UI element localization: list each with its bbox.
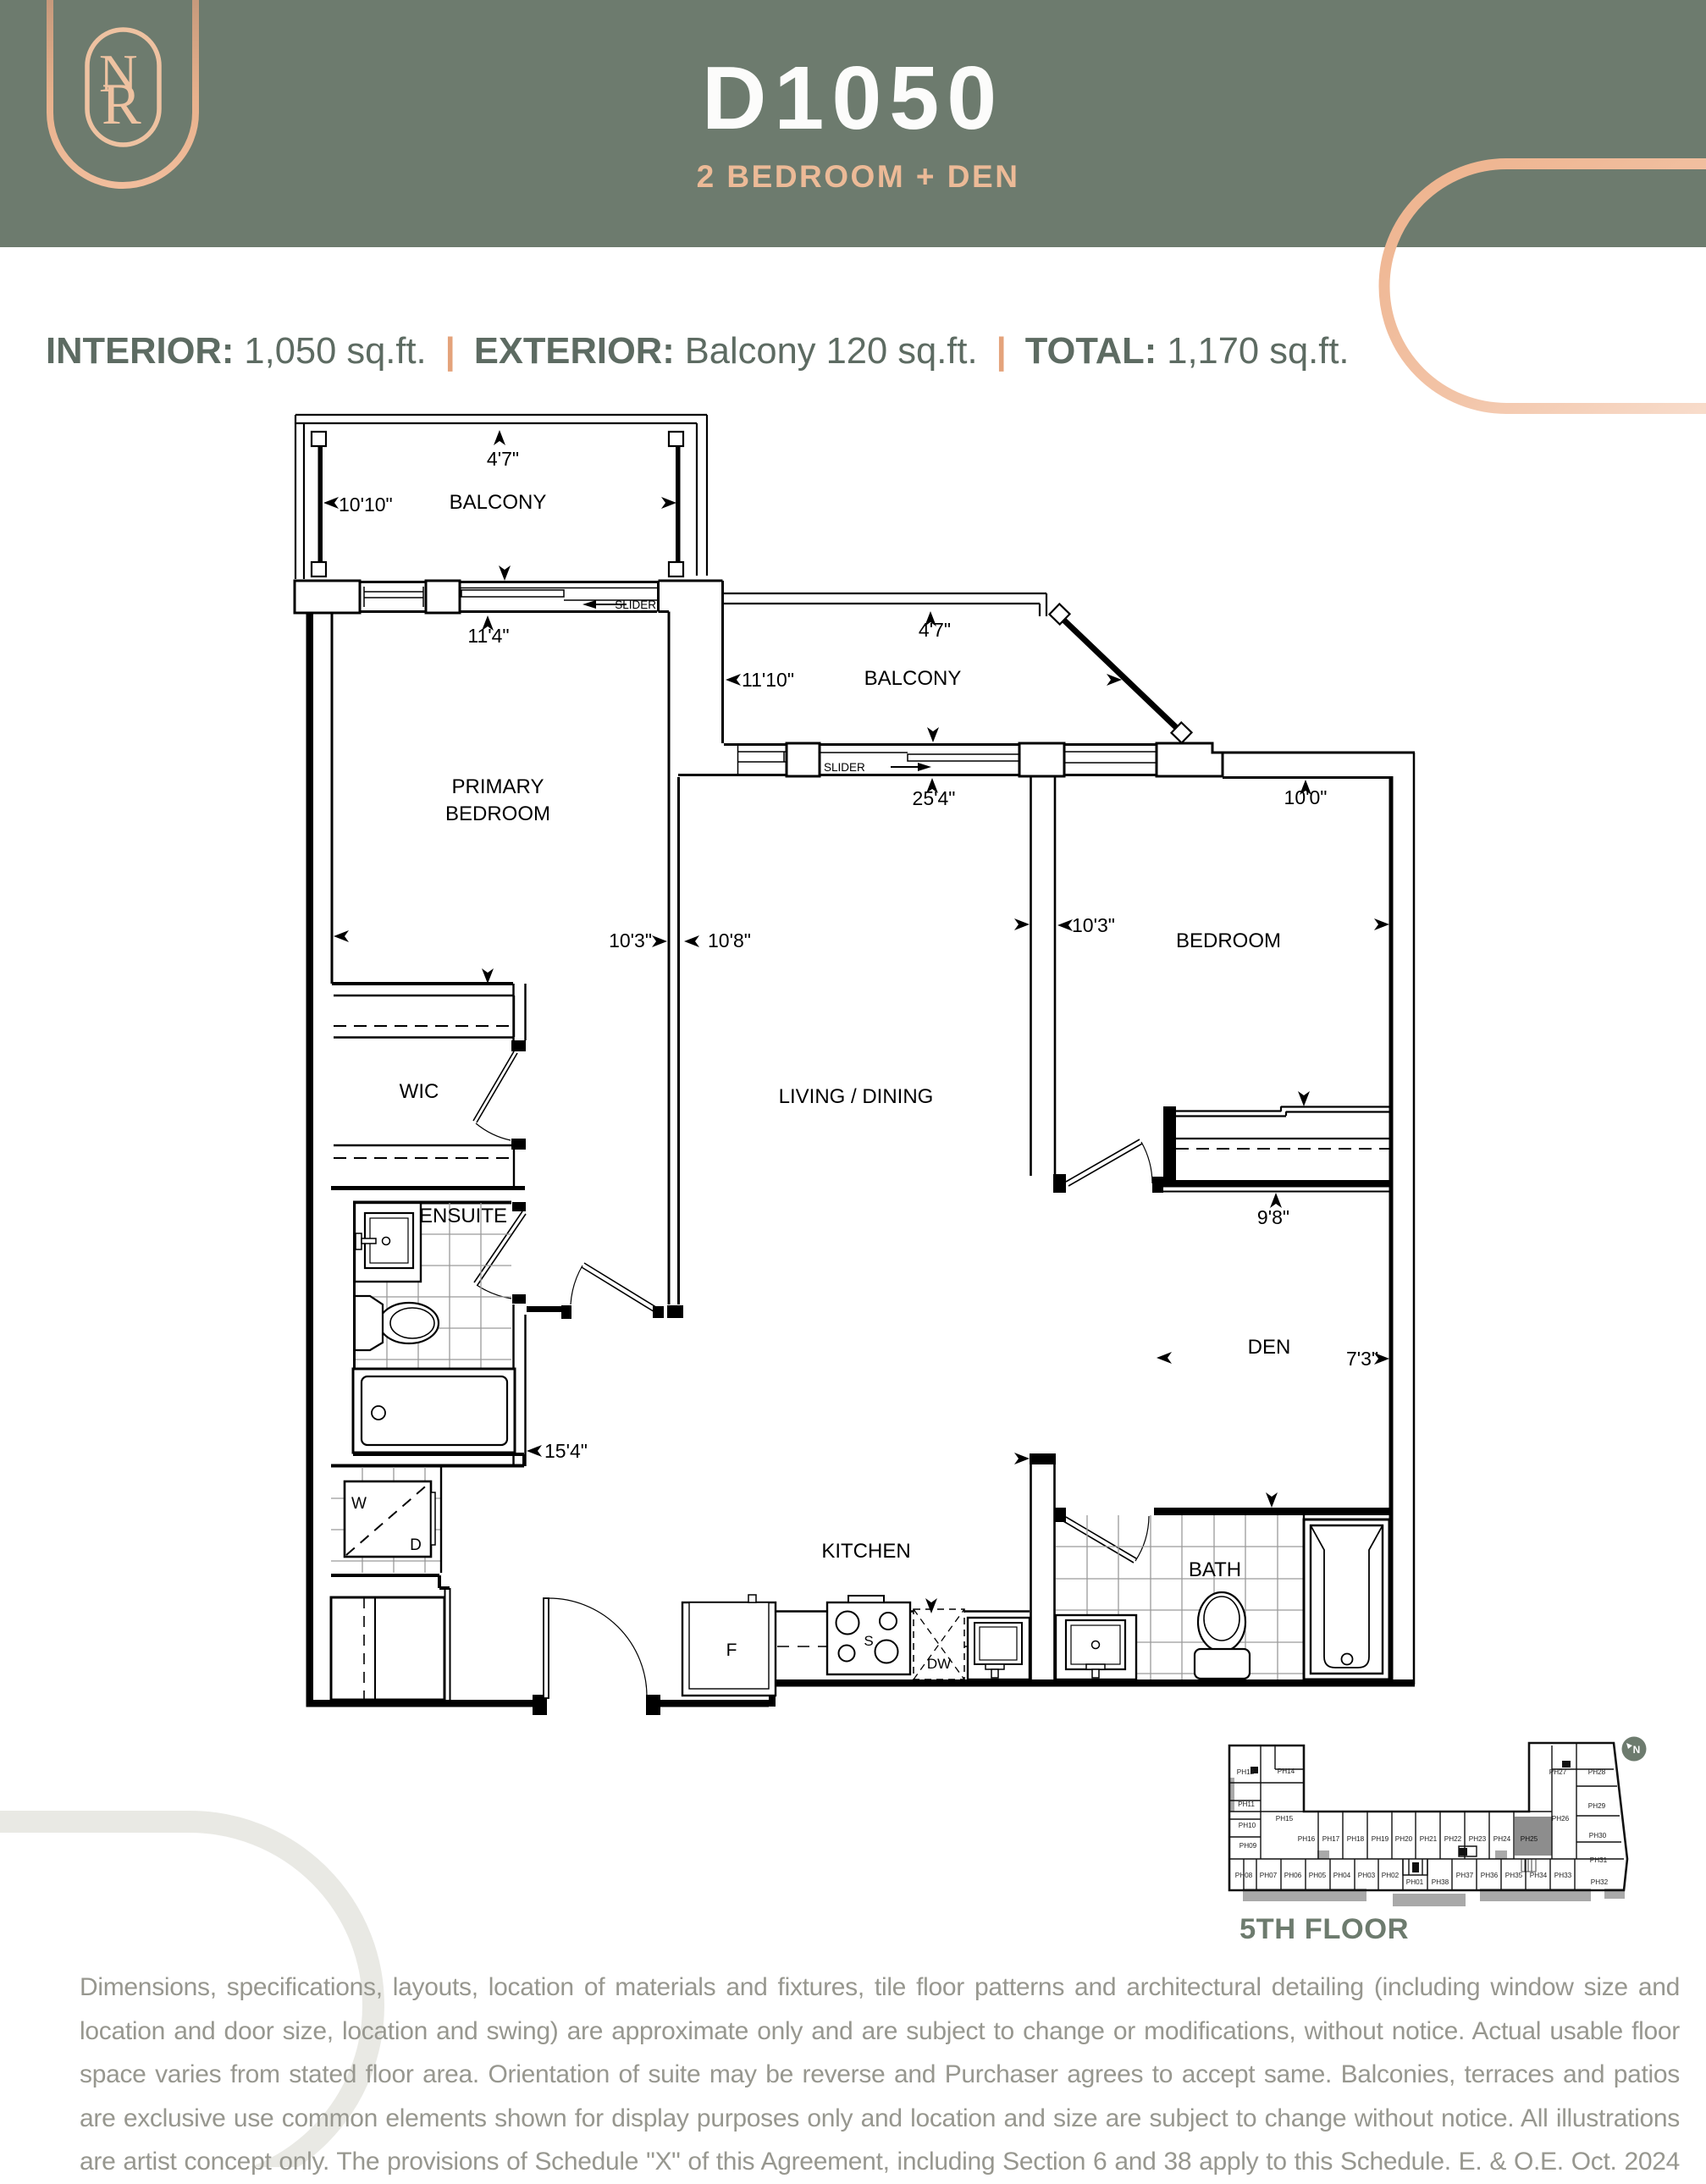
svg-text:PH09: PH09 (1239, 1842, 1257, 1850)
svg-text:PH19: PH19 (1372, 1835, 1389, 1843)
svg-text:PH31: PH31 (1590, 1856, 1608, 1864)
svg-text:PH16: PH16 (1298, 1835, 1316, 1843)
svg-text:PH06: PH06 (1284, 1872, 1302, 1879)
svg-text:PH05: PH05 (1309, 1872, 1327, 1879)
svg-text:BALCONY: BALCONY (450, 491, 547, 514)
svg-text:9'8": 9'8" (1257, 1206, 1289, 1228)
svg-text:SLIDER: SLIDER (824, 761, 865, 774)
svg-text:10'3": 10'3" (1072, 914, 1115, 936)
svg-text:PH21: PH21 (1420, 1835, 1438, 1843)
svg-text:LIVING / DINING: LIVING / DINING (779, 1085, 934, 1108)
svg-text:PH24: PH24 (1493, 1835, 1511, 1843)
svg-text:11'10": 11'10" (742, 669, 794, 691)
svg-text:PH18: PH18 (1347, 1835, 1365, 1843)
svg-text:10'8": 10'8" (708, 929, 751, 951)
svg-text:15'4": 15'4" (544, 1440, 588, 1462)
svg-text:PH23: PH23 (1469, 1835, 1487, 1843)
svg-text:4'7": 4'7" (487, 448, 519, 470)
svg-text:PH08: PH08 (1235, 1872, 1253, 1879)
svg-text:BEDROOM: BEDROOM (1176, 929, 1281, 952)
svg-text:SLIDER: SLIDER (615, 598, 656, 611)
svg-text:7'3": 7'3" (1346, 1348, 1378, 1370)
svg-text:BEDROOM: BEDROOM (445, 802, 550, 825)
svg-text:KITCHEN: KITCHEN (821, 1540, 910, 1563)
svg-text:11'4": 11'4" (467, 625, 509, 647)
svg-text:10'10": 10'10" (339, 494, 393, 516)
svg-text:PH26: PH26 (1552, 1815, 1570, 1823)
svg-text:D: D (410, 1536, 422, 1554)
svg-text:PH01: PH01 (1406, 1878, 1424, 1886)
svg-text:PH11: PH11 (1238, 1801, 1255, 1808)
svg-text:PH02: PH02 (1382, 1872, 1400, 1879)
svg-text:PH34: PH34 (1530, 1872, 1548, 1879)
svg-text:PH38: PH38 (1432, 1878, 1449, 1886)
svg-text:PH22: PH22 (1444, 1835, 1462, 1843)
svg-text:DEN: DEN (1248, 1336, 1291, 1359)
svg-text:PH35: PH35 (1505, 1872, 1523, 1879)
svg-text:ENSUITE: ENSUITE (419, 1205, 507, 1227)
svg-text:5TH FLOOR: 5TH FLOOR (1239, 1913, 1409, 1945)
svg-text:PH14: PH14 (1278, 1768, 1295, 1775)
svg-text:PH37: PH37 (1456, 1872, 1474, 1879)
svg-text:PH29: PH29 (1588, 1802, 1606, 1810)
svg-text:PH36: PH36 (1481, 1872, 1499, 1879)
svg-text:BALCONY: BALCONY (864, 667, 962, 690)
svg-text:PH33: PH33 (1554, 1872, 1572, 1879)
svg-text:S: S (864, 1633, 873, 1649)
svg-text:PH27: PH27 (1549, 1768, 1567, 1776)
svg-text:W: W (351, 1495, 367, 1513)
svg-text:PH12: PH12 (1237, 1768, 1255, 1776)
svg-text:F: F (726, 1641, 737, 1660)
svg-text:PH07: PH07 (1260, 1872, 1278, 1879)
svg-text:PH10: PH10 (1239, 1822, 1256, 1829)
svg-text:PH04: PH04 (1333, 1872, 1351, 1879)
svg-text:DW: DW (927, 1656, 951, 1672)
svg-text:PH03: PH03 (1358, 1872, 1376, 1879)
svg-text:R: R (102, 72, 141, 137)
svg-text:10'3": 10'3" (609, 929, 652, 951)
svg-text:25'4": 25'4" (913, 787, 956, 809)
svg-text:PH30: PH30 (1589, 1832, 1607, 1839)
svg-text:WIC: WIC (400, 1080, 439, 1103)
svg-text:PH28: PH28 (1588, 1768, 1606, 1776)
svg-text:PH20: PH20 (1395, 1835, 1413, 1843)
svg-text:PRIMARY: PRIMARY (452, 775, 544, 798)
svg-text:PH32: PH32 (1591, 1878, 1609, 1886)
svg-text:N: N (1633, 1744, 1641, 1756)
svg-text:PH17: PH17 (1322, 1835, 1340, 1843)
svg-text:BATH: BATH (1189, 1558, 1241, 1581)
svg-text:PH15: PH15 (1276, 1815, 1294, 1823)
svg-text:PH25: PH25 (1521, 1835, 1538, 1843)
